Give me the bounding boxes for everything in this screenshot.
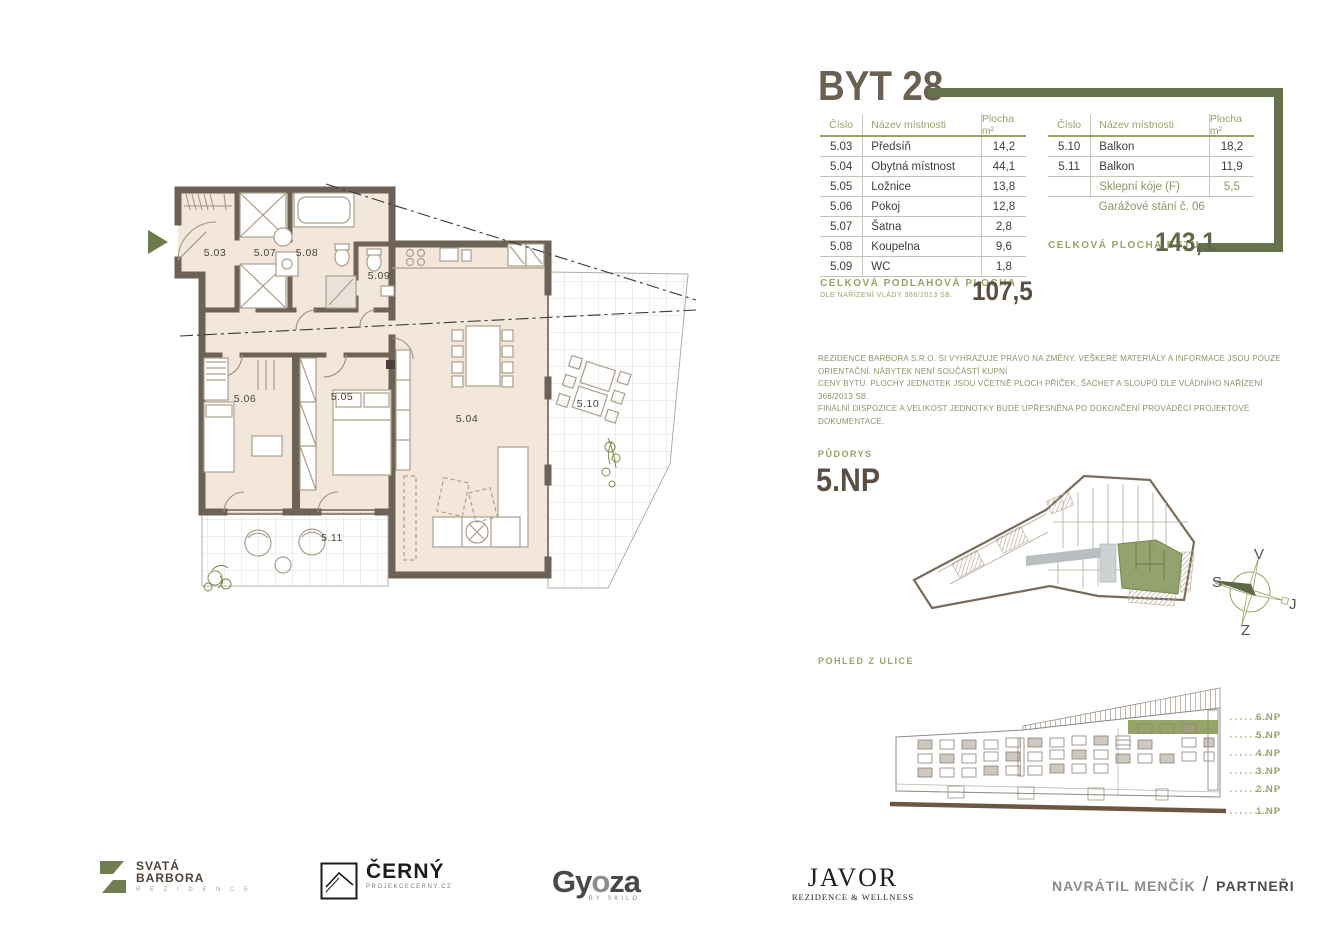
room-label: 5.04 xyxy=(456,413,478,425)
col-header-cislo: Číslo xyxy=(820,114,862,135)
col-header-nazev: Název místnosti xyxy=(862,114,981,135)
logo-cerny: ČERNÝ PROJEKCECERNY.CZ xyxy=(320,862,452,900)
table-row: 5.04Obytná místnost44,1 xyxy=(820,157,1026,177)
logo-navratil-mencik: NAVRÁTIL MENČÍK/PARTNEŘI xyxy=(1052,874,1295,897)
entry-arrow-icon xyxy=(148,230,168,254)
brochure-page: 5.03 5.07 5.08 5.09 5.06 5.05 5.04 5.10 … xyxy=(0,0,1339,943)
table-row: 5.03Předsíň14,2 xyxy=(820,137,1026,157)
room-table-right: Číslo Název místnosti Plocha m² 5.10Balk… xyxy=(1048,114,1254,216)
elevation-label: POHLED Z ULICE xyxy=(818,656,914,666)
balcony-5-10 xyxy=(548,272,688,588)
logo-text: ČERNÝ xyxy=(366,862,452,882)
room-label: 5.10 xyxy=(577,398,599,410)
table-row: 5.05Ložnice13,8 xyxy=(820,177,1026,197)
floor-area-value: 107,5 xyxy=(972,276,1033,307)
compass-label-s: S xyxy=(1212,574,1222,591)
room-label: 5.03 xyxy=(204,247,226,259)
table-row-garage: Garážové stání č. 06 xyxy=(1048,197,1254,216)
floor-label-4np: 4.NP xyxy=(1256,748,1281,759)
cerny-icon xyxy=(320,862,358,900)
logo-subtext: REZIDENCE & WELLNESS xyxy=(788,892,918,902)
logo-text: BARBORA xyxy=(136,872,252,884)
floor-label-3np: 3.NP xyxy=(1256,766,1281,777)
logo-gyoza: Gyoza BY SKILO xyxy=(552,864,640,902)
logo-svata-barbora: SVATÁ BARBORA R E Z I D E N C E xyxy=(98,860,252,894)
logo-subtext: PROJEKCECERNY.CZ xyxy=(366,884,452,890)
col-header-plocha: Plocha m² xyxy=(981,114,1026,135)
logo-text: NAVRÁTIL MENČÍK xyxy=(1052,878,1196,894)
disclaimer-line: CENY BYTU. PLOCHY JEDNOTEK JSOU VČETNĚ P… xyxy=(818,378,1298,403)
logo-text: JAVOR xyxy=(788,866,918,890)
balcony-5-11 xyxy=(202,512,388,586)
siteplan-floor: 5.NP xyxy=(816,462,880,499)
room-label: 5.09 xyxy=(368,270,390,282)
floor-area-sublabel: DLE NAŘÍZENÍ VLÁDY 366/2013 SB. xyxy=(820,292,953,299)
room-label: 5.07 xyxy=(254,247,276,259)
site-plan-svg xyxy=(898,460,1233,625)
page-title: BYT 28 xyxy=(818,62,943,110)
room-label: 5.11 xyxy=(321,532,343,544)
table-row: 5.06Pokoj12,8 xyxy=(820,197,1026,217)
disclaimer-line: REZIDENCE BARBORA S.R.O. SI VYHRAZUJE PR… xyxy=(818,353,1298,378)
floor-plan: 5.03 5.07 5.08 5.09 5.06 5.05 5.04 5.10 … xyxy=(140,180,700,600)
unit-area-value: 143,1 xyxy=(1155,227,1216,258)
table-row: 5.11Balkon11,9 xyxy=(1048,157,1254,177)
siteplan-label: PŮDORYS xyxy=(818,449,873,459)
elevation-svg xyxy=(888,680,1288,822)
logo-subtext: R E Z I D E N C E xyxy=(136,887,252,893)
ground-line xyxy=(890,804,1226,811)
floor-label-2np: 2.NP xyxy=(1256,784,1281,795)
compass-label-j: J xyxy=(1289,596,1297,613)
room-table-left: Číslo Název místnosti Plocha m² 5.03Před… xyxy=(820,114,1026,277)
table-row: 5.08Koupelna9,6 xyxy=(820,237,1026,257)
title-bar-top xyxy=(928,88,1274,97)
table-row: 5.07Šatna2,8 xyxy=(820,217,1026,237)
table-header-row: Číslo Název místnosti Plocha m² xyxy=(820,114,1026,137)
floor-label-1np: 1.NP xyxy=(1256,806,1281,817)
table-row: 5.10Balkon18,2 xyxy=(1048,137,1254,157)
svata-barbora-icon xyxy=(98,860,128,894)
compass-label-v: V xyxy=(1254,546,1264,563)
room-label: 5.05 xyxy=(331,391,353,403)
logo-javor: JAVOR REZIDENCE & WELLNESS xyxy=(788,866,918,902)
title-bar-right xyxy=(1274,88,1283,252)
floor-label-6np: 6.NP xyxy=(1256,712,1281,723)
logo-text: Gy xyxy=(552,864,591,899)
floor-label-5np: 5.NP xyxy=(1256,730,1281,741)
compass-label-z: Z xyxy=(1241,622,1250,639)
highlighted-floor-band xyxy=(1128,720,1218,734)
disclaimer-line: FINÁLNÍ DISPOZICE A VELIKOST JEDNOTKY BU… xyxy=(818,403,1298,428)
floor-plan-svg xyxy=(140,180,700,600)
table-header-row: Číslo Název místnosti Plocha m² xyxy=(1048,114,1254,137)
table-row: 5.09WC1,8 xyxy=(820,257,1026,277)
room-label: 5.06 xyxy=(234,393,256,405)
table-row-cellar: Sklepní kóje (F)5,5 xyxy=(1048,177,1254,197)
room-label: 5.08 xyxy=(296,247,318,259)
disclaimer: REZIDENCE BARBORA S.R.O. SI VYHRAZUJE PR… xyxy=(818,353,1298,428)
